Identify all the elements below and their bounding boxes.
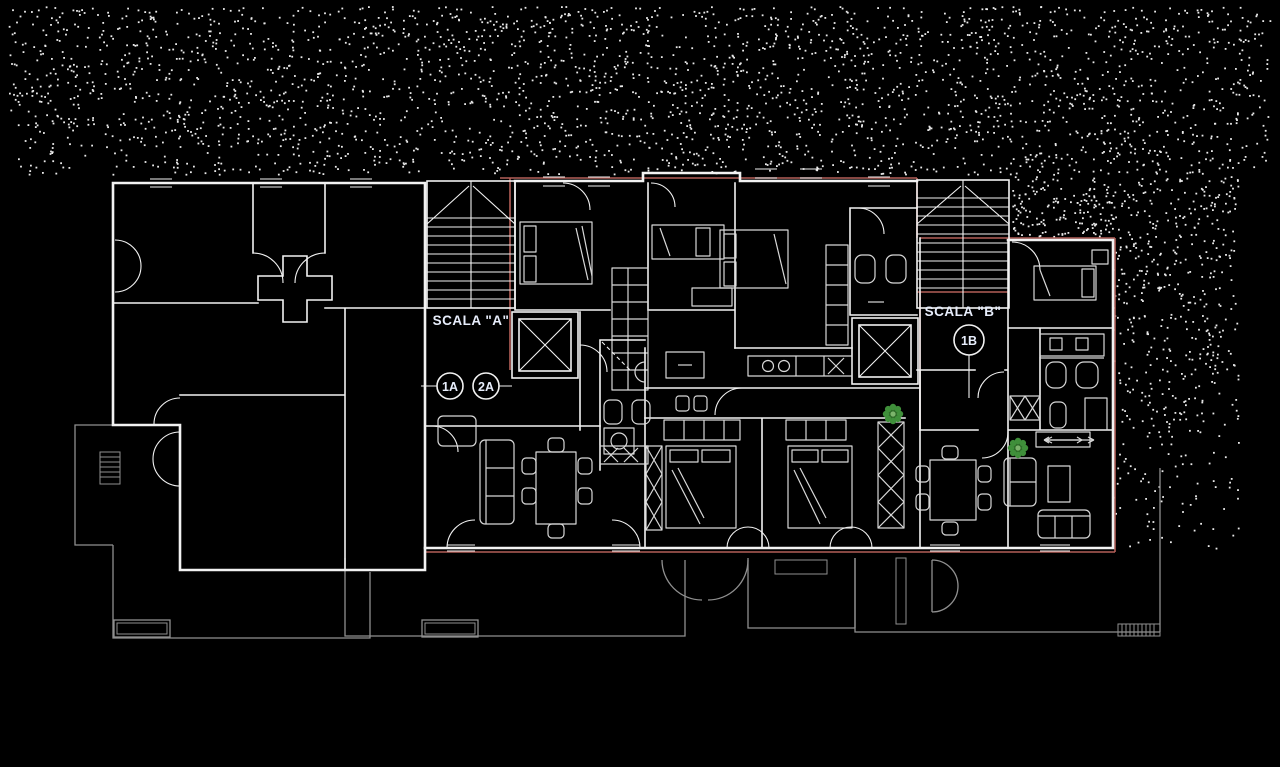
stair-a-label: SCALA "A" [433,313,510,328]
floor-plan-drawing: SCALA "A" 1A 2A [0,0,1280,767]
structural-core [258,256,332,322]
elevator-a [512,312,578,378]
unit-1b [916,240,1113,551]
unit-2a-label: 2A [478,380,494,394]
unit-1a-label: 1A [442,380,458,394]
left-apartment-walls [113,183,425,570]
stair-scala-b [917,180,1009,308]
stair-scala-a [427,181,515,308]
stair-b-label: SCALA "B" [925,304,1002,319]
cad-canvas: SCALA "A" 1A 2A [0,0,1280,767]
terrace-outlines [75,425,1160,638]
unit-tags-a: 1A 2A [421,373,512,399]
unit-boundary-red-lines [425,178,1115,552]
plant-symbol [883,404,903,424]
plant-symbol [1008,438,1028,458]
elevator-b [852,318,918,384]
unit-2a-lower [645,238,920,548]
unit-1b-label: 1B [961,334,977,348]
planter [775,560,827,574]
unit-tag-b: 1B [954,325,984,398]
plants [883,404,1028,458]
